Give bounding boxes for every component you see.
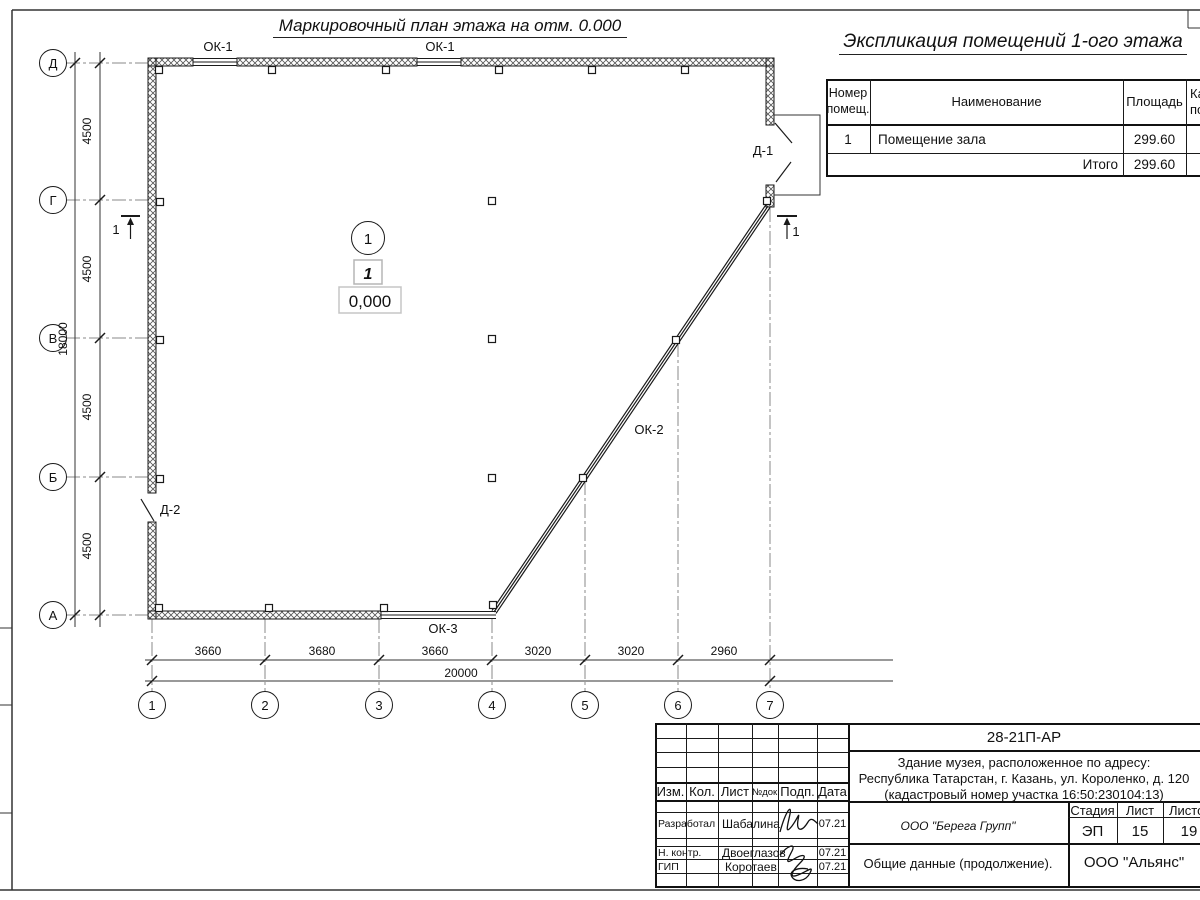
axis-label-6: 6 [674,698,681,713]
explication-table: Номер помещ. Наименование Площадь Ка по … [826,79,1200,177]
dim-20000: 20000 [444,666,478,680]
col-header-category-line1: Ка [1190,86,1200,101]
header-data: Дата [817,784,848,799]
stage-value: ЭП [1068,823,1117,840]
dim-3020-2: 3020 [618,644,645,658]
col-axis-bubbles [139,692,784,719]
label-d1: Д-1 [753,143,773,158]
dim-18000: 18000 [56,322,70,356]
dim-4500-3: 4500 [80,393,94,420]
project-line3: (кадастровый номер участка 16:50:230104:… [848,787,1200,802]
col-header-number-line1: Номер [826,86,870,100]
room-marker: 1 1 0,000 [339,222,401,314]
axis-label-g: Г [49,193,56,208]
window-ok2 [492,205,770,614]
section-mark-left: 1 [112,216,140,239]
plan-title-wrap: Маркировочный план этажа на отм. 0.000 [240,16,660,38]
explication-title-wrap: Экспликация помещений 1-ого этажа [826,31,1200,55]
room-row-name: Помещение зала [878,132,986,147]
axis-label-4: 4 [488,698,495,713]
contractor-name: ООО "Альянс" [1068,854,1200,871]
dim-3660-2: 3660 [422,644,449,658]
date-developer: 07.21 [817,818,848,830]
axis-label-5: 5 [581,698,588,713]
section-number-right: 1 [792,224,799,239]
project-line2: Республика Татарстан, г. Казань, ул. Кор… [848,771,1200,786]
col-header-area: Площадь [1123,94,1186,109]
sheets-value: 19 [1163,823,1200,840]
header-kol: Кол. [686,784,718,799]
dimension-ticks [70,58,775,686]
label-ok3: ОК-3 [428,621,457,636]
doc-number: 28-21П-АР [848,729,1200,746]
dim-2960: 2960 [711,644,738,658]
axis-label-2: 2 [261,698,268,713]
header-list: Лист [718,784,752,799]
label-ok1-b: ОК-1 [425,39,454,54]
sheet-value: 15 [1117,823,1163,840]
header-ndok: №док. [752,787,778,798]
section-arrow-icon [127,218,134,226]
col-header-name: Наименование [870,94,1123,109]
bottom-dimension-lines [145,660,893,681]
header-podp: Подп. [778,784,817,799]
room-tag: 1 [364,266,373,283]
axis-label-d: Д [49,56,58,71]
axis-label-1: 1 [148,698,155,713]
room-row-area: 299.60 [1123,132,1186,147]
dim-4500-4: 4500 [80,532,94,559]
header-izm: Изм. [655,784,686,799]
org-name: ООО "Берега Групп" [848,819,1068,833]
window-ok1-a [193,59,237,66]
stage-label: Стадия [1068,803,1117,818]
dim-3660-1: 3660 [195,644,222,658]
doc-title: Общие данные (продолжение). [848,856,1068,871]
sheet-label: Лист [1117,803,1163,818]
door-d1-leaf-bottom [776,162,791,182]
role-gip: ГИП [658,861,679,873]
axis-label-a: А [49,608,58,623]
window-ok3 [381,612,496,619]
role-developer: Разработал [658,818,715,830]
axis-label-b: Б [49,470,58,485]
total-label: Итого [826,157,1118,172]
col-header-category-line2: по [1190,102,1200,117]
name-gip: Коротаев [725,860,777,874]
entrance-porch [774,115,820,195]
axis-label-7: 7 [766,698,773,713]
dim-4500-1: 4500 [80,117,94,144]
door-leaves [141,123,792,521]
section-number-left: 1 [112,222,119,237]
label-ok2: ОК-2 [634,422,663,437]
explication-title: Экспликация помещений 1-ого этажа [839,31,1186,55]
axis-label-3: 3 [375,698,382,713]
section-arrow-icon [784,218,791,226]
signature-icon [776,802,820,842]
door-d1-leaf-top [775,123,792,143]
section-mark-right: 1 [777,216,800,239]
label-ok1-a: ОК-1 [203,39,232,54]
name-developer: Шабалина [722,817,780,831]
room-row-number: 1 [826,132,870,147]
room-number: 1 [364,231,372,248]
title-block: Изм. Кол. Лист №док. Подп. Дата Разработ… [655,723,1200,888]
level-mark: 0,000 [349,292,392,311]
label-d2: Д-2 [160,502,180,517]
sheets-label: Листов [1169,803,1200,818]
dim-4500-2: 4500 [80,255,94,282]
window-ok1-b [417,59,461,66]
signature-icon [774,841,822,885]
role-ncontrol: Н. контр. [658,847,701,859]
project-line1: Здание музея, расположенное по адресу: [848,755,1200,770]
dim-3020-1: 3020 [525,644,552,658]
dim-3680: 3680 [309,644,336,658]
axis-lines [66,63,770,691]
plan-title: Маркировочный план этажа на отм. 0.000 [273,16,627,38]
total-area: 299.60 [1123,157,1186,172]
col-header-number-line2: помещ. [826,102,870,116]
door-d2-leaf [141,499,154,521]
drawing-sheet: Д Г В Б А 1 2 3 4 5 6 7 4500 4500 4500 4 [0,0,1200,900]
